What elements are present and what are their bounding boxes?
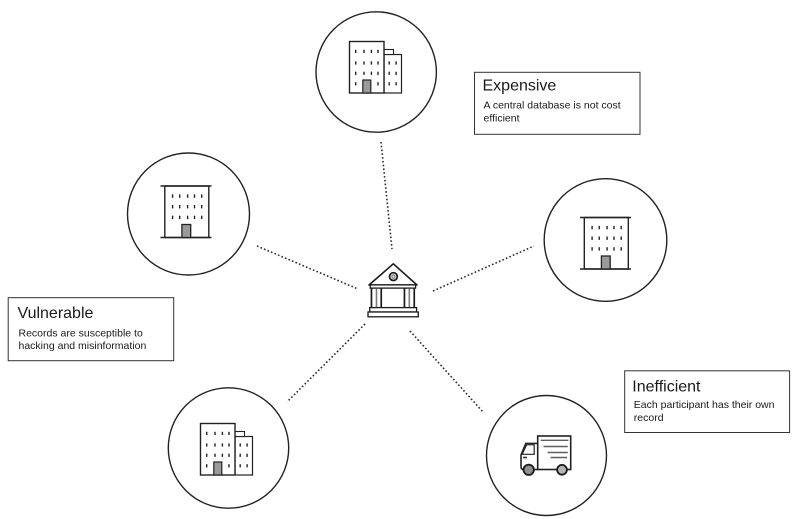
svg-text:Inefficient: Inefficient xyxy=(632,378,701,395)
svg-text:Records are susceptible to: Records are susceptible to xyxy=(19,327,143,339)
svg-text:Each participant has their own: Each participant has their own xyxy=(634,399,775,411)
svg-text:efficient: efficient xyxy=(484,113,520,125)
svg-text:hacking and misinformation: hacking and misinformation xyxy=(19,340,147,352)
svg-text:Expensive: Expensive xyxy=(483,78,557,95)
svg-text:A central database is not cost: A central database is not cost xyxy=(484,100,621,112)
svg-text:Vulnerable: Vulnerable xyxy=(18,305,94,322)
svg-text:record: record xyxy=(634,412,664,424)
